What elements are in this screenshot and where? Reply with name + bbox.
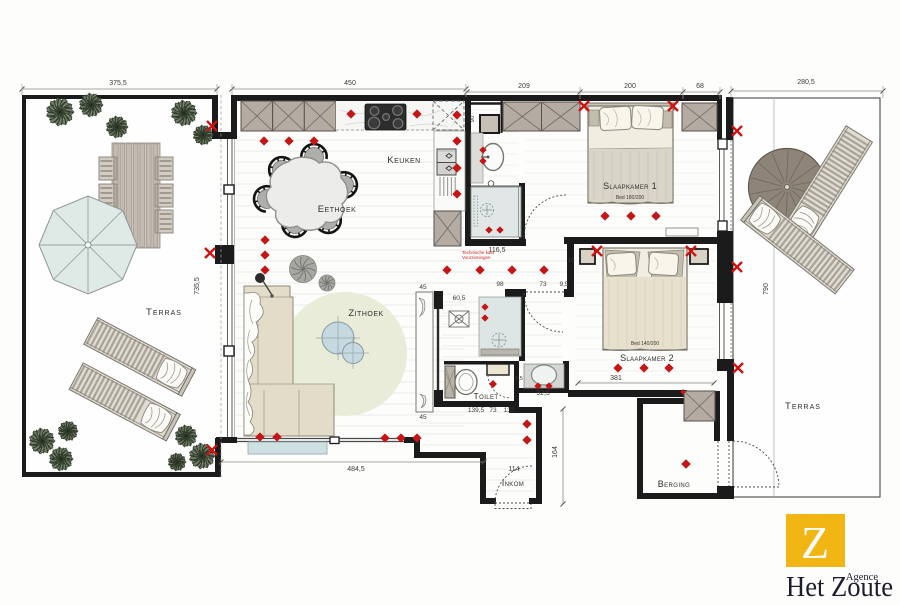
svg-text:73: 73 xyxy=(539,281,547,288)
svg-text:375,5: 375,5 xyxy=(109,80,127,87)
svg-text:45: 45 xyxy=(419,414,427,421)
svg-text:10: 10 xyxy=(568,258,575,264)
svg-text:381: 381 xyxy=(610,375,622,382)
svg-text:Slaapkamer 2: Slaapkamer 2 xyxy=(620,353,674,363)
svg-text:Inkom: Inkom xyxy=(502,478,524,488)
svg-text:209: 209 xyxy=(518,83,530,90)
svg-text:790: 790 xyxy=(763,283,770,295)
svg-text:Terras: Terras xyxy=(146,307,182,318)
svg-text:139,5: 139,5 xyxy=(468,407,485,414)
svg-text:Voorzieningen: Voorzieningen xyxy=(462,255,491,260)
svg-text:9,5: 9,5 xyxy=(559,281,568,288)
svg-text:164: 164 xyxy=(552,446,559,458)
svg-text:280,5: 280,5 xyxy=(797,79,815,86)
svg-text:484,5: 484,5 xyxy=(347,466,365,473)
svg-text:Berging: Berging xyxy=(658,479,690,489)
svg-text:Zithoek: Zithoek xyxy=(348,308,383,319)
svg-text:Terras: Terras xyxy=(785,401,821,412)
svg-text:60,5: 60,5 xyxy=(453,295,466,302)
svg-text:132: 132 xyxy=(504,407,515,414)
svg-text:735,5: 735,5 xyxy=(194,277,201,295)
svg-text:92,5: 92,5 xyxy=(536,390,550,397)
svg-text:Eethoek: Eethoek xyxy=(318,204,357,215)
svg-text:450: 450 xyxy=(344,80,356,87)
svg-text:98: 98 xyxy=(496,281,504,288)
svg-text:Keuken: Keuken xyxy=(387,155,420,166)
svg-text:6,5: 6,5 xyxy=(515,376,523,382)
svg-text:90: 90 xyxy=(470,115,476,122)
svg-text:200: 200 xyxy=(624,83,636,90)
svg-text:114: 114 xyxy=(508,466,519,473)
svg-text:Toilet: Toilet xyxy=(474,391,499,401)
svg-text:45: 45 xyxy=(419,284,427,291)
svg-text:Bed 180/200: Bed 180/200 xyxy=(616,195,645,201)
svg-text:Z: Z xyxy=(801,517,829,568)
svg-text:Het Zoute: Het Zoute xyxy=(786,571,893,600)
svg-text:68: 68 xyxy=(696,83,704,90)
svg-text:Slaapkamer 1: Slaapkamer 1 xyxy=(603,181,657,191)
svg-text:Bed 140/200: Bed 140/200 xyxy=(631,341,660,347)
svg-text:73: 73 xyxy=(489,407,497,414)
